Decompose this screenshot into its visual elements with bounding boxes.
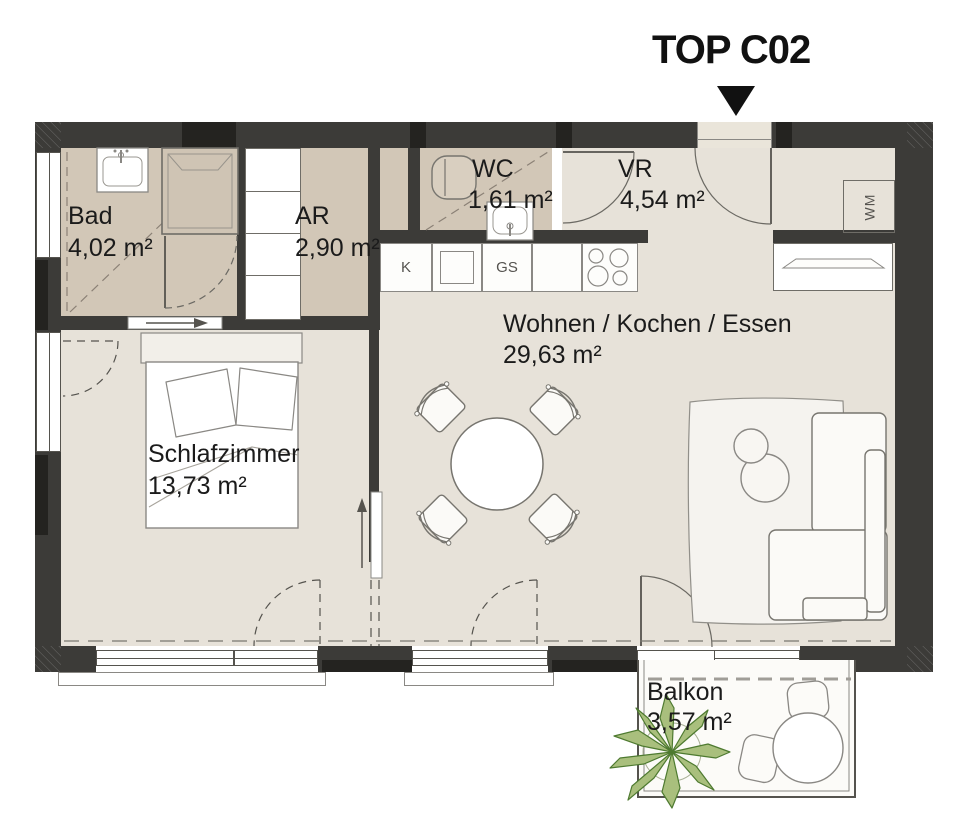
room-label-wc: WC bbox=[472, 155, 514, 184]
balcony-door-frame bbox=[637, 650, 716, 666]
washing-machine-label: WM bbox=[861, 193, 877, 220]
balcony-chair bbox=[737, 733, 783, 785]
window-bedroom-bottom bbox=[96, 650, 318, 666]
room-ar-floor bbox=[301, 148, 368, 316]
window-pane-line bbox=[49, 333, 50, 451]
window-pane-line bbox=[97, 658, 317, 659]
window-balcony-side bbox=[714, 650, 800, 666]
room-area-vr: 4,54 m² bbox=[620, 186, 705, 215]
room-label-schlafzimmer: Schlafzimmer bbox=[148, 440, 299, 469]
window-pane-line bbox=[413, 658, 547, 659]
balcony-table bbox=[773, 713, 843, 783]
wall-bad-shelf bbox=[237, 148, 245, 320]
room-area-ar: 2,90 m² bbox=[295, 234, 380, 263]
wall-column bbox=[556, 122, 572, 148]
corner-hatch bbox=[907, 122, 933, 148]
wall-wc-bottom bbox=[368, 230, 648, 243]
room-label-balkon: Balkon bbox=[647, 678, 723, 707]
room-area-balkon: 3,57 m² bbox=[647, 708, 732, 737]
wall-bedroom-divider bbox=[369, 330, 379, 562]
wall-column bbox=[410, 122, 426, 148]
corner-hatch bbox=[907, 646, 933, 672]
room-area-wc: 1,61 m² bbox=[468, 186, 553, 215]
window-pane-line bbox=[715, 658, 799, 659]
window-bedroom-left bbox=[36, 332, 61, 452]
wall-column bbox=[35, 455, 48, 535]
balcony-chair bbox=[786, 680, 830, 721]
shelf-divider bbox=[246, 191, 300, 192]
room-area-wohnen: 29,63 m² bbox=[503, 341, 602, 370]
kitchen-sink bbox=[440, 251, 474, 284]
window-mullion bbox=[233, 651, 235, 665]
sill-living bbox=[404, 672, 554, 686]
kitchen-cabinet bbox=[532, 243, 582, 292]
room-bad-floor bbox=[61, 148, 237, 316]
wall-top bbox=[35, 122, 933, 148]
wall-column bbox=[776, 122, 792, 148]
room-label-wohnen: Wohnen / Kochen / Essen bbox=[503, 310, 792, 339]
kitchen-stove bbox=[582, 243, 638, 292]
wall-column bbox=[182, 122, 236, 148]
room-label-ar: AR bbox=[295, 202, 330, 231]
wall-shaft bbox=[408, 148, 420, 232]
wall-column bbox=[552, 660, 637, 672]
ar-shelf-unit bbox=[245, 148, 301, 320]
corner-hatch bbox=[35, 122, 61, 148]
unit-title: TOP C02 bbox=[652, 28, 810, 73]
shelf-divider bbox=[246, 275, 300, 276]
shelf-divider bbox=[246, 233, 300, 234]
wall-column bbox=[35, 260, 48, 330]
window-pane-line bbox=[49, 153, 50, 257]
floor-plan: TOP C02 bbox=[0, 0, 966, 830]
corner-hatch bbox=[35, 646, 61, 672]
wc-door-gap bbox=[552, 148, 562, 230]
room-area-schlafzimmer: 13,73 m² bbox=[148, 472, 247, 501]
window-bad bbox=[36, 152, 61, 258]
entrance-opening bbox=[697, 122, 772, 148]
entrance-marker-icon bbox=[717, 86, 755, 116]
entrance-door-line bbox=[697, 139, 772, 140]
shaft-floor bbox=[380, 148, 408, 230]
sill-bedroom bbox=[58, 672, 326, 686]
wall-bad-bottom bbox=[61, 316, 368, 330]
wall-column bbox=[322, 660, 412, 672]
window-living-bottom bbox=[412, 650, 548, 666]
room-label-vr: VR bbox=[618, 155, 653, 184]
room-label-bad: Bad bbox=[68, 202, 112, 231]
dishwasher-label: GS bbox=[496, 259, 518, 276]
sideboard bbox=[773, 243, 893, 291]
kitchen-fridge: K bbox=[380, 243, 432, 292]
fridge-label: K bbox=[401, 259, 411, 276]
room-area-bad: 4,02 m² bbox=[68, 234, 153, 263]
wall-right bbox=[895, 122, 933, 672]
washing-machine: WM bbox=[843, 180, 895, 233]
kitchen-dishwasher: GS bbox=[482, 243, 532, 292]
